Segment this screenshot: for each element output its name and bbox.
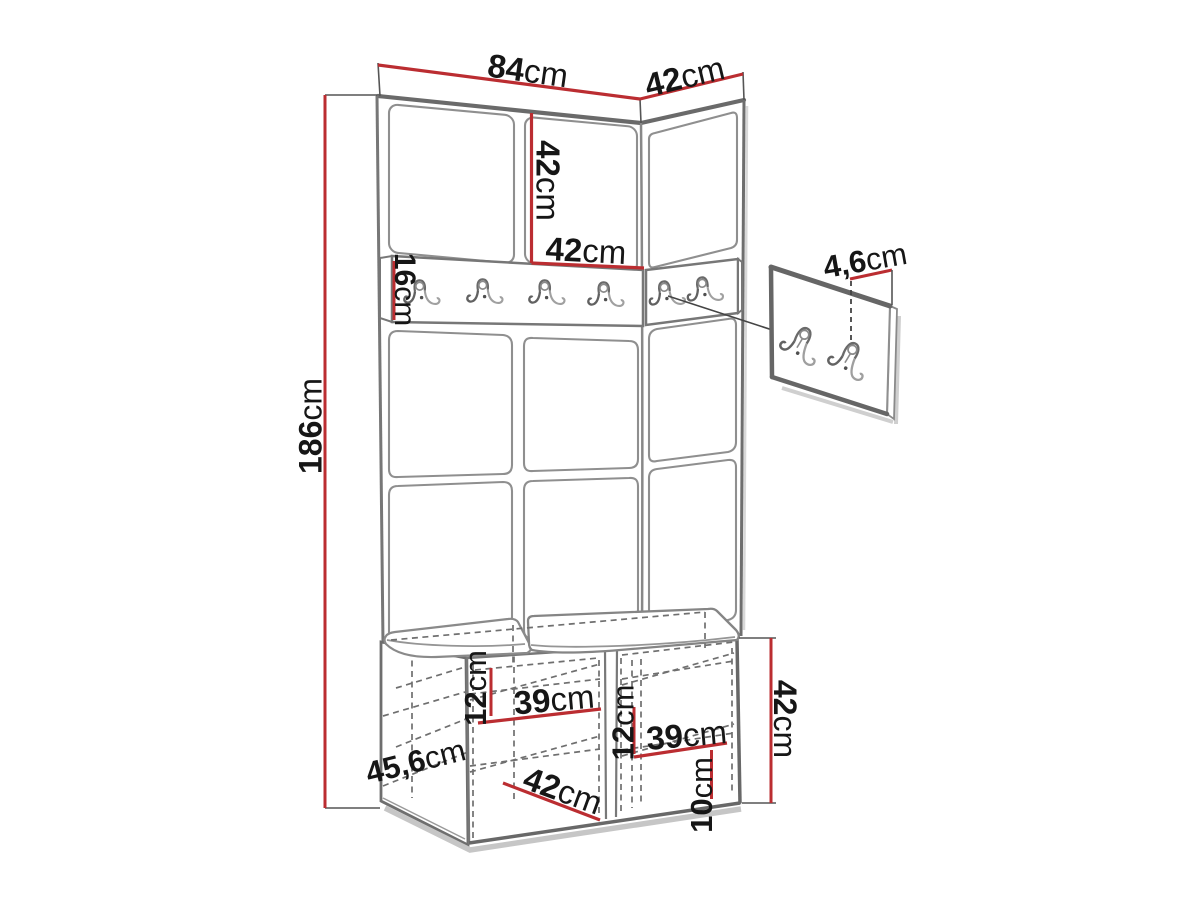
svg-text:10cm: 10cm: [684, 757, 719, 833]
svg-text:186cm: 186cm: [293, 378, 329, 474]
svg-text:42cm: 42cm: [545, 229, 628, 270]
svg-text:39cm: 39cm: [512, 677, 596, 721]
svg-text:42cm: 42cm: [767, 680, 803, 758]
svg-text:12cm: 12cm: [458, 650, 493, 726]
svg-text:42cm: 42cm: [530, 140, 567, 221]
svg-text:39cm: 39cm: [645, 713, 729, 757]
svg-text:16cm: 16cm: [389, 253, 422, 326]
svg-text:12cm: 12cm: [605, 685, 640, 761]
